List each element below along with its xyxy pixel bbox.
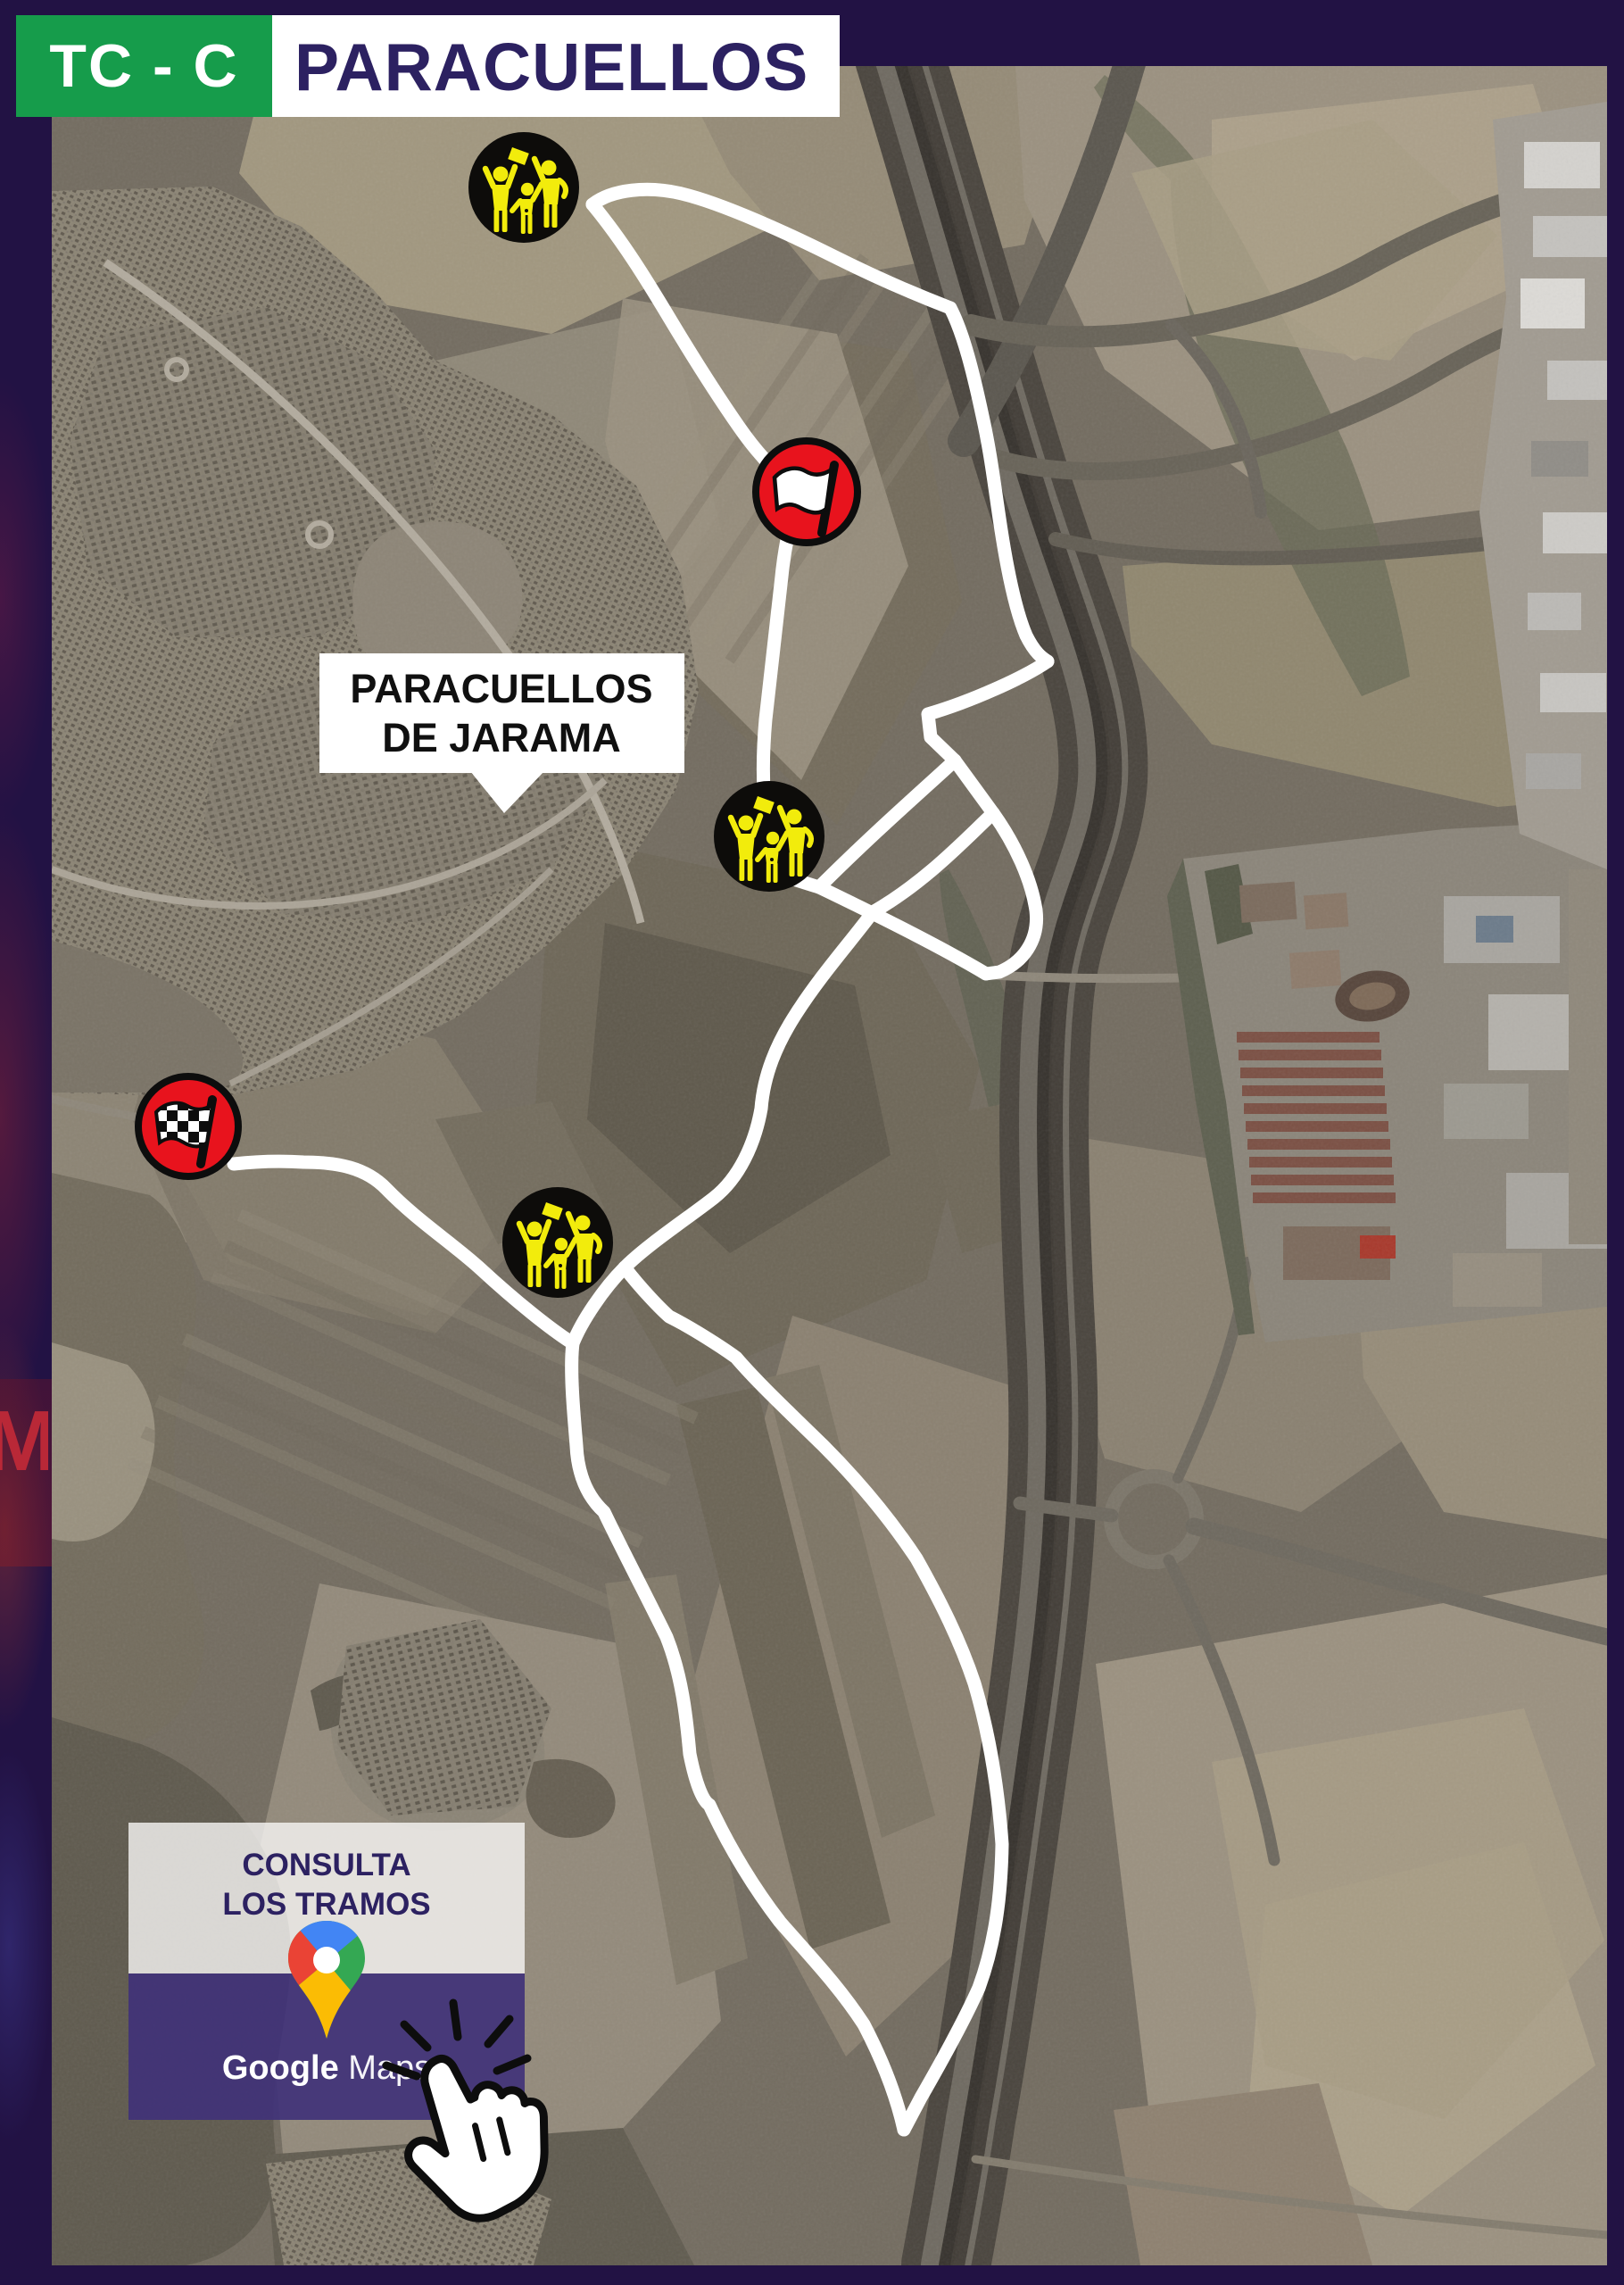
svg-text:PARACUELLOS: PARACUELLOS [350,666,652,711]
svg-text:DE JARAMA: DE JARAMA [382,715,621,760]
